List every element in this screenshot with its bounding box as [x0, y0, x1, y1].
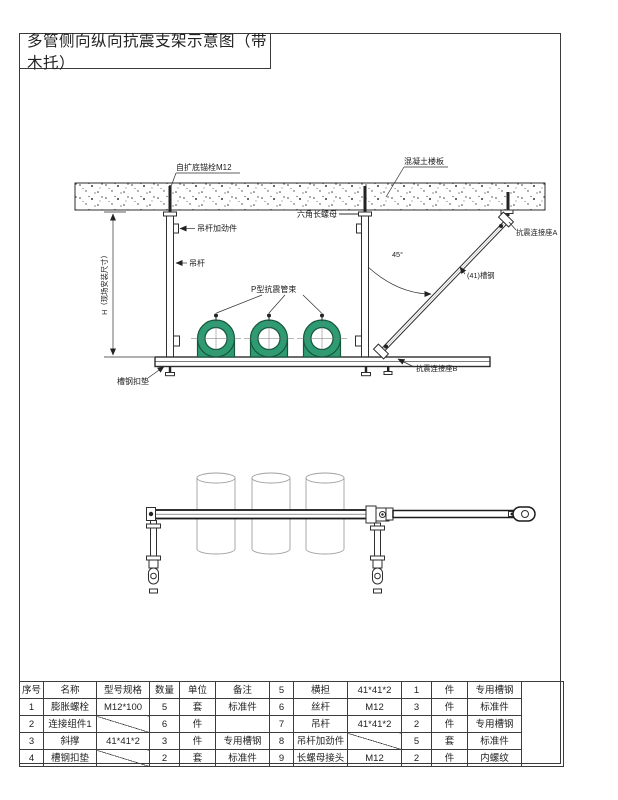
- table-cell: 3: [150, 733, 180, 750]
- table-cell: 件: [432, 682, 468, 699]
- table-cell: 件: [432, 699, 468, 716]
- table-row: 3 斜撑 41*41*2 3 件 专用槽钢 8 吊杆加劲件 5 套 标准件: [20, 733, 564, 750]
- table-cell: 标准件: [468, 699, 522, 716]
- table-cell: [348, 733, 402, 750]
- schematic-drawing: 45° H（现场安装尺寸） 自扩底锚栓M12 混凝土楼板 六角长螺母 吊杆加劲件: [0, 0, 618, 800]
- hanger-rod-right: [362, 216, 369, 357]
- table-cell: 吊杆: [294, 716, 348, 733]
- height-dimension: H（现场安装尺寸）: [100, 212, 154, 357]
- table-header-cell: 序号: [20, 682, 44, 699]
- hanger-lower-bracket-right: [356, 336, 362, 346]
- table-cell: M12: [348, 699, 402, 716]
- table-cell: 件: [432, 750, 468, 767]
- drawing-sheet: 多管侧向纵向抗震支架示意图（带木托）: [0, 0, 618, 800]
- table-cell: 5: [150, 699, 180, 716]
- pipe-clamp-label: P型抗震管束: [251, 284, 296, 294]
- table-cell: 标准件: [216, 699, 270, 716]
- table-cell: 斜撑: [44, 733, 97, 750]
- table-cell: 槽钢扣垫: [44, 750, 97, 767]
- table-cell: 件: [180, 733, 216, 750]
- table-cell: 丝杆: [294, 699, 348, 716]
- anchor-bolt-label: 自扩底锚栓M12: [176, 162, 232, 172]
- hanger-stiffener-right: [357, 224, 362, 233]
- table-cell: 6: [150, 716, 180, 733]
- seismic-connector-a-label: 抗震连接座A: [516, 228, 557, 237]
- angle-label: 45°: [392, 250, 403, 259]
- table-cell: 标准件: [216, 750, 270, 767]
- seismic-connector-b-label: 抗震连接座B: [416, 364, 457, 373]
- plan-left-hanger: [147, 508, 161, 594]
- table-cell: 4: [20, 750, 44, 767]
- table-row: 4 槽钢扣垫 2 套 标准件 9 长螺母接头 M12 2 件 内螺纹: [20, 750, 564, 767]
- table-cell: 专用槽钢: [216, 733, 270, 750]
- table-cell: 吊杆加劲件: [294, 733, 348, 750]
- hanger-stiffener-left: [174, 224, 179, 233]
- table-cell: 标准件: [468, 733, 522, 750]
- table-cell: 套: [180, 750, 216, 767]
- channel-bolt-left: [166, 367, 175, 376]
- channel-bolt-brace: [384, 367, 392, 375]
- table-cell: 2: [402, 750, 432, 767]
- table-header-cell: 备注: [216, 682, 270, 699]
- table-cell: 2: [150, 750, 180, 767]
- hanger-stiffener-label: 吊杆加劲件: [197, 223, 237, 233]
- table-cell: 件: [180, 716, 216, 733]
- hanger-rod-left: [167, 216, 174, 357]
- brace-channel-label: (41)槽钢: [467, 271, 495, 280]
- plan-brace-rod: [386, 507, 535, 521]
- hanger-lower-bracket-left: [174, 336, 180, 346]
- table-cell: 5: [270, 682, 294, 699]
- table-cell: 膨胀螺栓: [44, 699, 97, 716]
- table-cell: 3: [20, 733, 44, 750]
- table-cell: 3: [402, 699, 432, 716]
- angle-arc: [368, 267, 431, 294]
- table-cell: 套: [180, 699, 216, 716]
- hanger-rod-label: 吊杆: [189, 258, 205, 268]
- table-cell: 专用槽钢: [468, 682, 522, 699]
- table-cell: 41*41*2: [97, 733, 150, 750]
- table-cell: [97, 750, 150, 767]
- table-header-cell: 名称: [44, 682, 97, 699]
- table-header-cell: 数量: [150, 682, 180, 699]
- table-cell: 6: [270, 699, 294, 716]
- table-cell: 专用槽钢: [468, 716, 522, 733]
- hex-long-nut-label: 六角长螺母: [297, 209, 337, 219]
- table-cell: 2: [402, 716, 432, 733]
- table-cell: 2: [20, 716, 44, 733]
- table-row: 序号 名称 型号规格 数量 单位 备注 5 横担 41*41*2 1 件 专用槽…: [20, 682, 564, 699]
- table-header-cell: 单位: [180, 682, 216, 699]
- table-cell: 9: [270, 750, 294, 767]
- table-cell: [97, 716, 150, 733]
- plan-view: [147, 473, 536, 593]
- table-cell: 1: [20, 699, 44, 716]
- table-cell: 套: [432, 733, 468, 750]
- table-cell: 横担: [294, 682, 348, 699]
- parts-table: 序号 名称 型号规格 数量 单位 备注 5 横担 41*41*2 1 件 专用槽…: [19, 681, 564, 767]
- table-header-cell: 型号规格: [97, 682, 150, 699]
- table-cell: 41*41*2: [348, 716, 402, 733]
- table-row: 1 膨胀螺栓 M12*100 5 套 标准件 6 丝杆 M12 3 件 标准件: [20, 699, 564, 716]
- table-cell: M12: [348, 750, 402, 767]
- height-dim-label: H（现场安装尺寸）: [100, 251, 109, 315]
- channel-bolt-right: [362, 367, 371, 376]
- channel-pad-label: 槽钢扣垫: [117, 376, 149, 386]
- table-cell: 1: [402, 682, 432, 699]
- table-cell: M12*100: [97, 699, 150, 716]
- concrete-slab: [75, 183, 545, 210]
- elevation-view: 45° H（现场安装尺寸） 自扩底锚栓M12 混凝土楼板 六角长螺母 吊杆加劲件: [75, 156, 557, 386]
- table-cell: 8: [270, 733, 294, 750]
- table-row: 2 连接组件1 6 件 7 吊杆 41*41*2 2 件 专用槽钢: [20, 716, 564, 733]
- table-empty-column: [522, 682, 564, 767]
- table-cell: 7: [270, 716, 294, 733]
- table-cell: 长螺母接头: [294, 750, 348, 767]
- plan-cross-channel: [153, 510, 378, 519]
- table-cell: 件: [432, 716, 468, 733]
- table-cell: 连接组件1: [44, 716, 97, 733]
- concrete-slab-label: 混凝土楼板: [404, 156, 444, 166]
- table-cell: 41*41*2: [348, 682, 402, 699]
- table-cell: 5: [402, 733, 432, 750]
- table-cell: [216, 716, 270, 733]
- table-cell: 内螺纹: [468, 750, 522, 767]
